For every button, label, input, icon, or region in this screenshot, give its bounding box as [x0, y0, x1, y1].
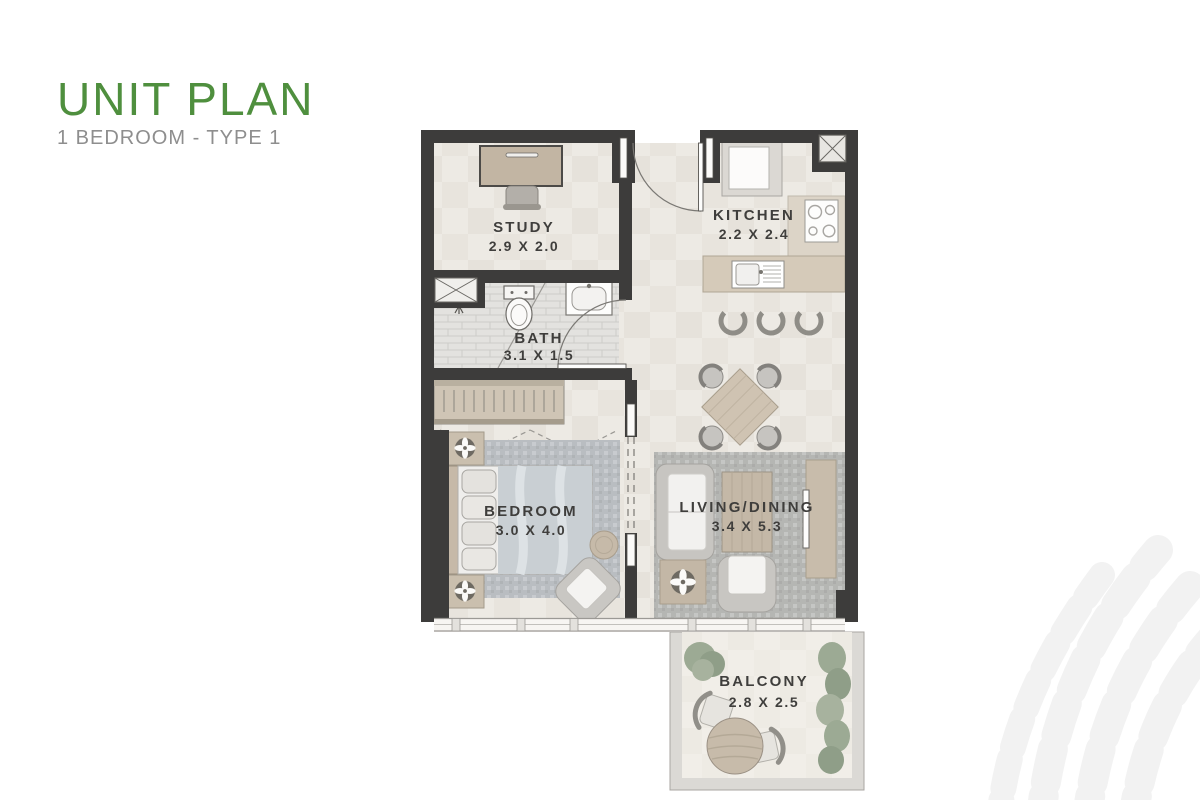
dining-table — [696, 361, 784, 453]
study-dims: 2.9 X 2.0 — [489, 238, 559, 254]
nightstand — [446, 575, 484, 608]
jamb — [706, 138, 713, 178]
wall — [619, 283, 632, 300]
bedroom-label: BEDROOM — [484, 503, 578, 520]
wall — [421, 130, 612, 143]
window-mullion — [688, 619, 696, 632]
bath-label: BATH — [514, 330, 563, 347]
page-title: UNIT PLAN — [57, 75, 314, 123]
living-dining-dims: 3.4 X 5.3 — [712, 518, 782, 534]
living-armchair — [718, 556, 776, 612]
tv-console — [803, 460, 836, 578]
fridge — [729, 147, 769, 189]
wall — [836, 590, 858, 622]
pillow — [462, 548, 496, 570]
building-watermark — [960, 520, 1200, 800]
door-leaf — [699, 143, 704, 211]
study-desk — [480, 146, 562, 186]
corner-shaft-vent — [819, 135, 846, 162]
window-mullion — [452, 619, 460, 632]
window-band — [434, 618, 845, 632]
wall — [421, 368, 632, 380]
header: UNIT PLAN 1 BEDROOM - TYPE 1 — [57, 75, 314, 150]
bath-dims: 3.1 X 1.5 — [504, 347, 574, 363]
sliding-panel — [627, 404, 635, 436]
bed — [446, 466, 592, 574]
wardrobe — [434, 380, 564, 424]
window-mullion — [748, 619, 756, 632]
toilet-icon — [504, 286, 534, 330]
wall — [845, 130, 858, 622]
sliding-panel — [627, 534, 635, 566]
page-subtitle: 1 BEDROOM - TYPE 1 — [57, 127, 314, 150]
desk-chair — [503, 186, 541, 210]
window-mullion — [570, 619, 578, 632]
wall — [619, 183, 632, 270]
kitchen-label: KITCHEN — [713, 207, 795, 224]
bedroom-side-table — [590, 531, 618, 559]
wall — [421, 430, 449, 620]
kitchen-dims: 2.2 X 2.4 — [719, 226, 789, 242]
study-label: STUDY — [493, 219, 555, 236]
window-mullion — [517, 619, 525, 632]
pillow — [462, 470, 496, 493]
balcony-label: BALCONY — [719, 673, 809, 690]
pillow — [462, 522, 496, 545]
stove-icon — [805, 200, 838, 242]
duvet — [498, 466, 592, 574]
balcony-room — [670, 632, 864, 790]
page: UNIT PLAN 1 BEDROOM - TYPE 1 — [0, 0, 1200, 800]
balcony-table — [707, 718, 763, 774]
door-leaf — [558, 364, 626, 369]
shaft-vent — [427, 272, 485, 308]
nightstand — [446, 432, 484, 465]
jamb — [620, 138, 627, 178]
vanity-sink-icon — [566, 281, 612, 315]
window-mullion — [803, 619, 811, 632]
bedroom-dims: 3.0 X 4.0 — [496, 522, 566, 538]
living-side-table — [660, 560, 706, 604]
floor-plan: STUDY 2.9 X 2.0 KITCHEN 2.2 X 2.4 BATH 3… — [420, 118, 870, 800]
balcony-dims: 2.8 X 2.5 — [729, 694, 799, 710]
sink-icon — [732, 261, 784, 288]
living-dining-label: LIVING/DINING — [679, 499, 814, 516]
